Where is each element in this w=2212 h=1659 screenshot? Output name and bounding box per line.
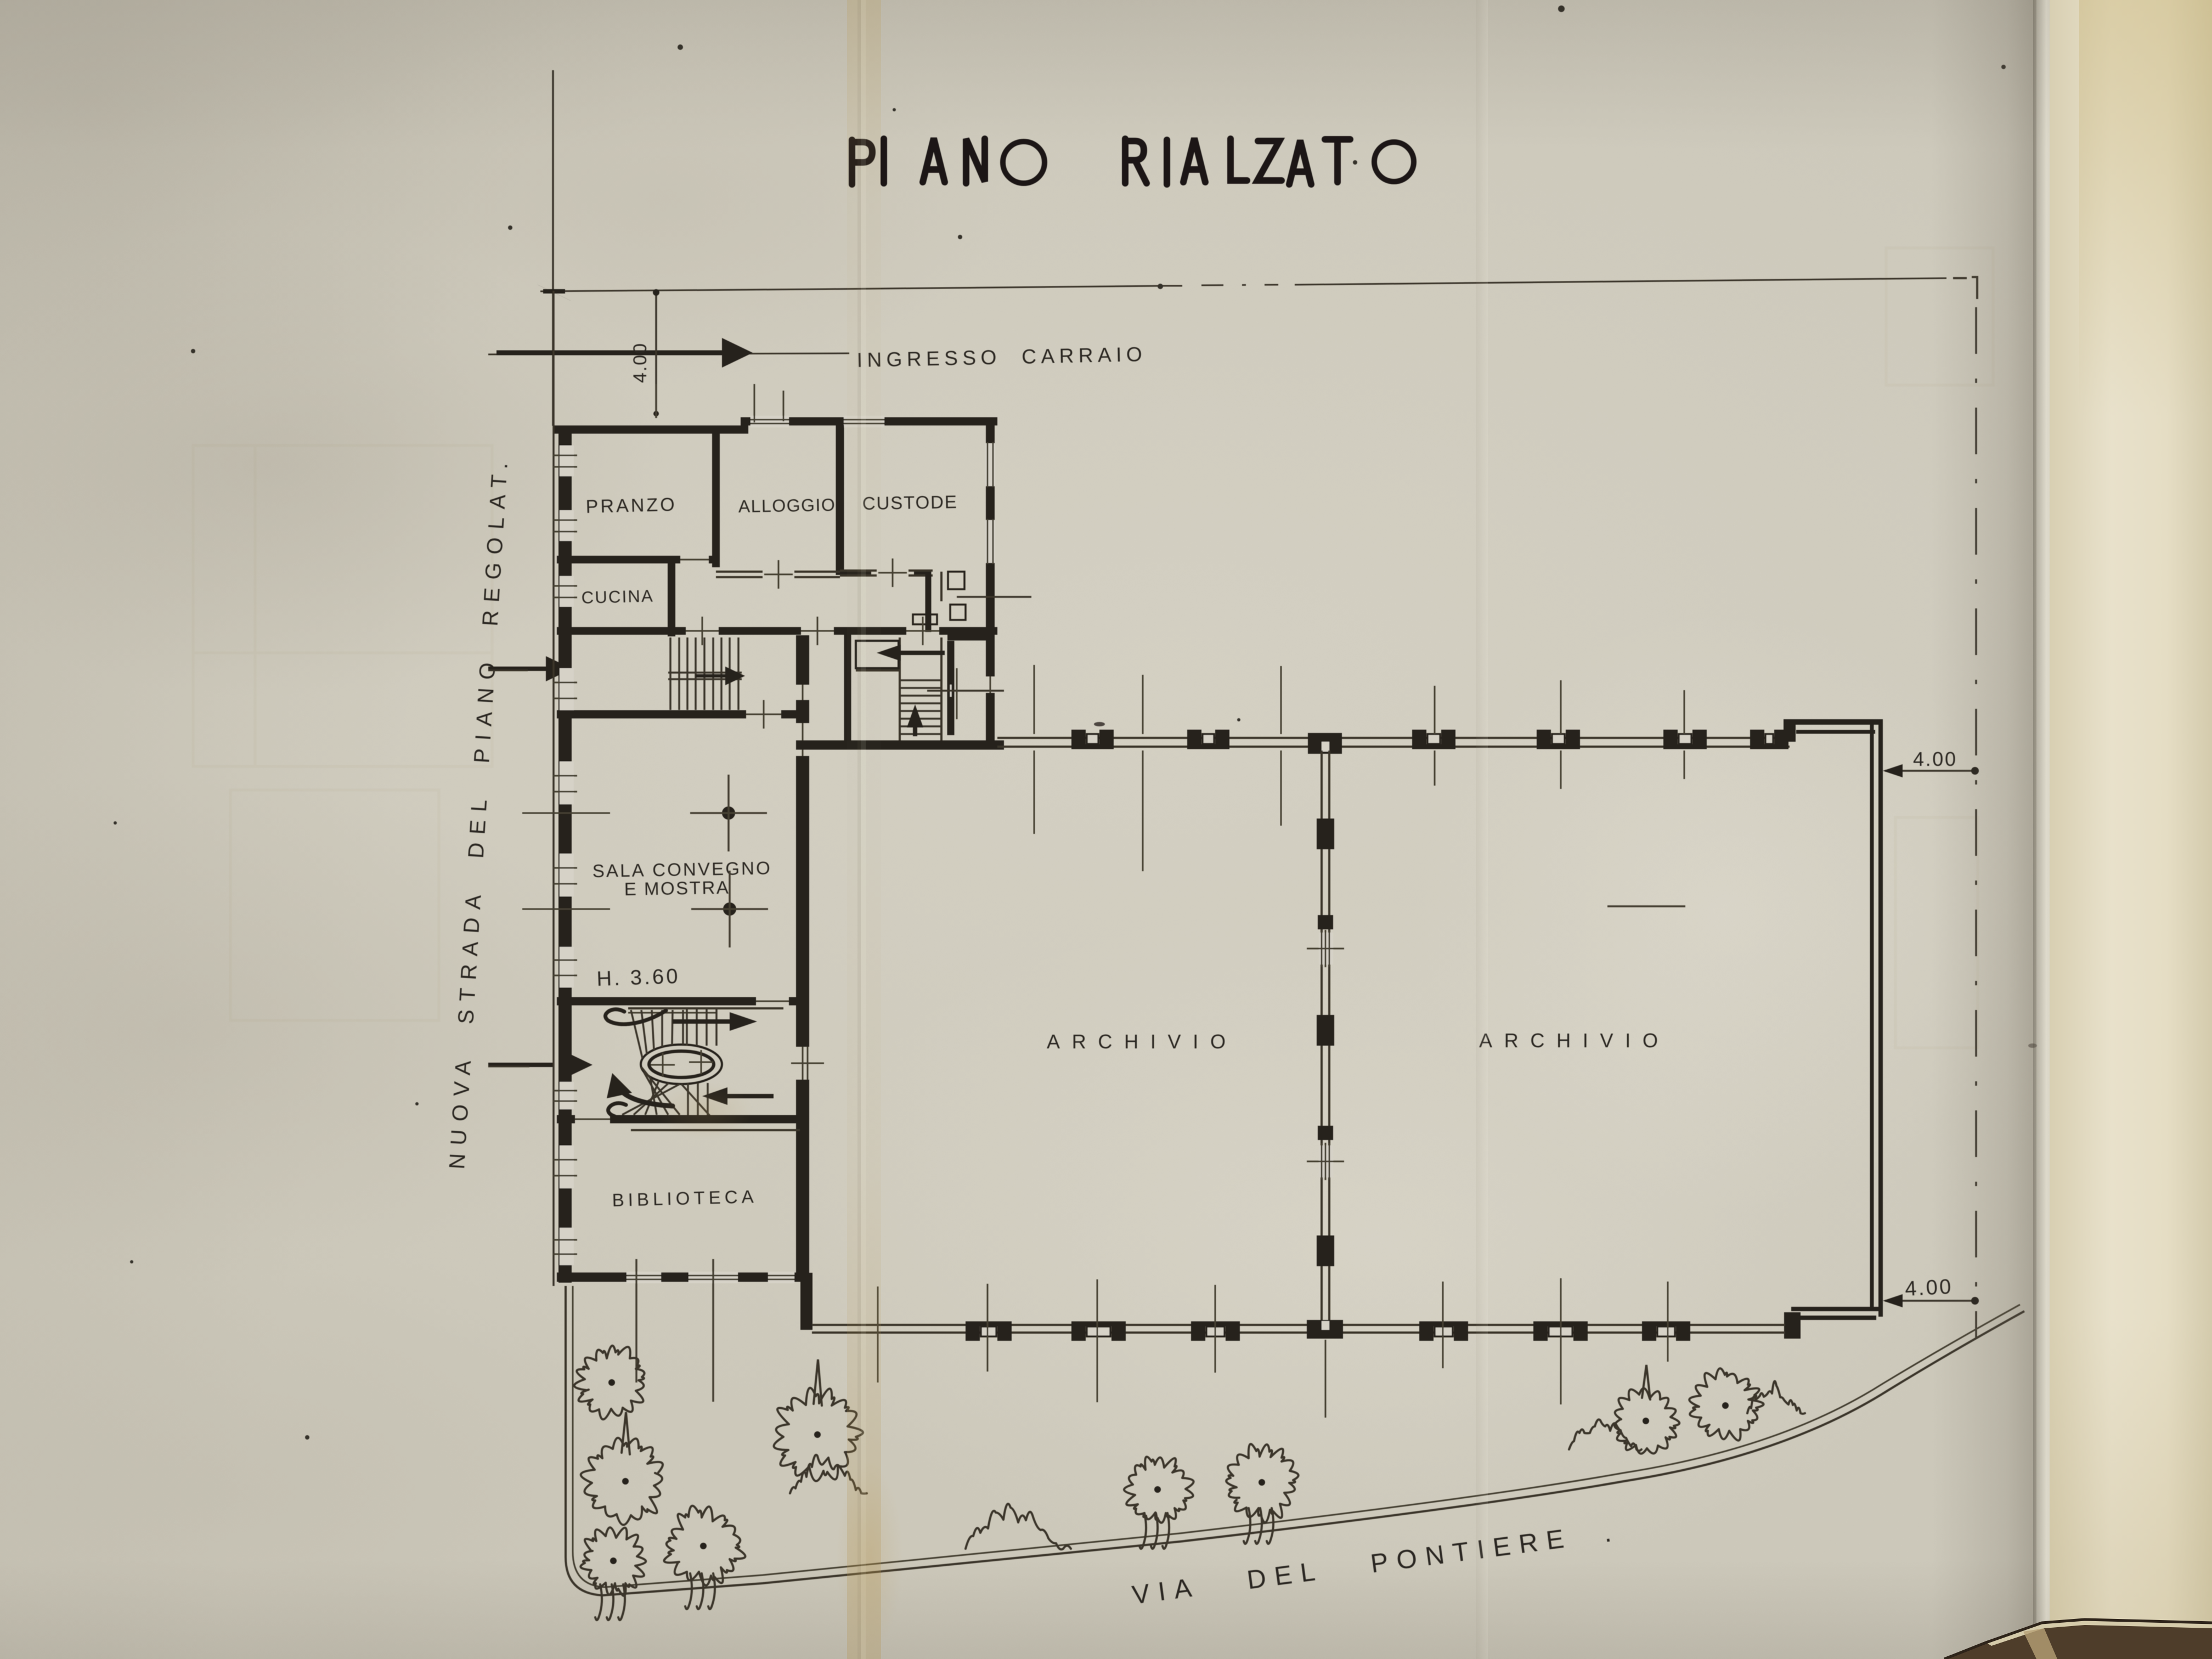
svg-text:4.00: 4.00: [630, 343, 651, 383]
svg-text:E MOSTRA: E MOSTRA: [624, 877, 729, 899]
svg-text:4.00: 4.00: [1904, 1276, 1951, 1301]
svg-text:CUSTODE: CUSTODE: [862, 492, 957, 513]
svg-text:CUCINA: CUCINA: [581, 586, 653, 607]
svg-text:4.00: 4.00: [1913, 748, 1956, 770]
